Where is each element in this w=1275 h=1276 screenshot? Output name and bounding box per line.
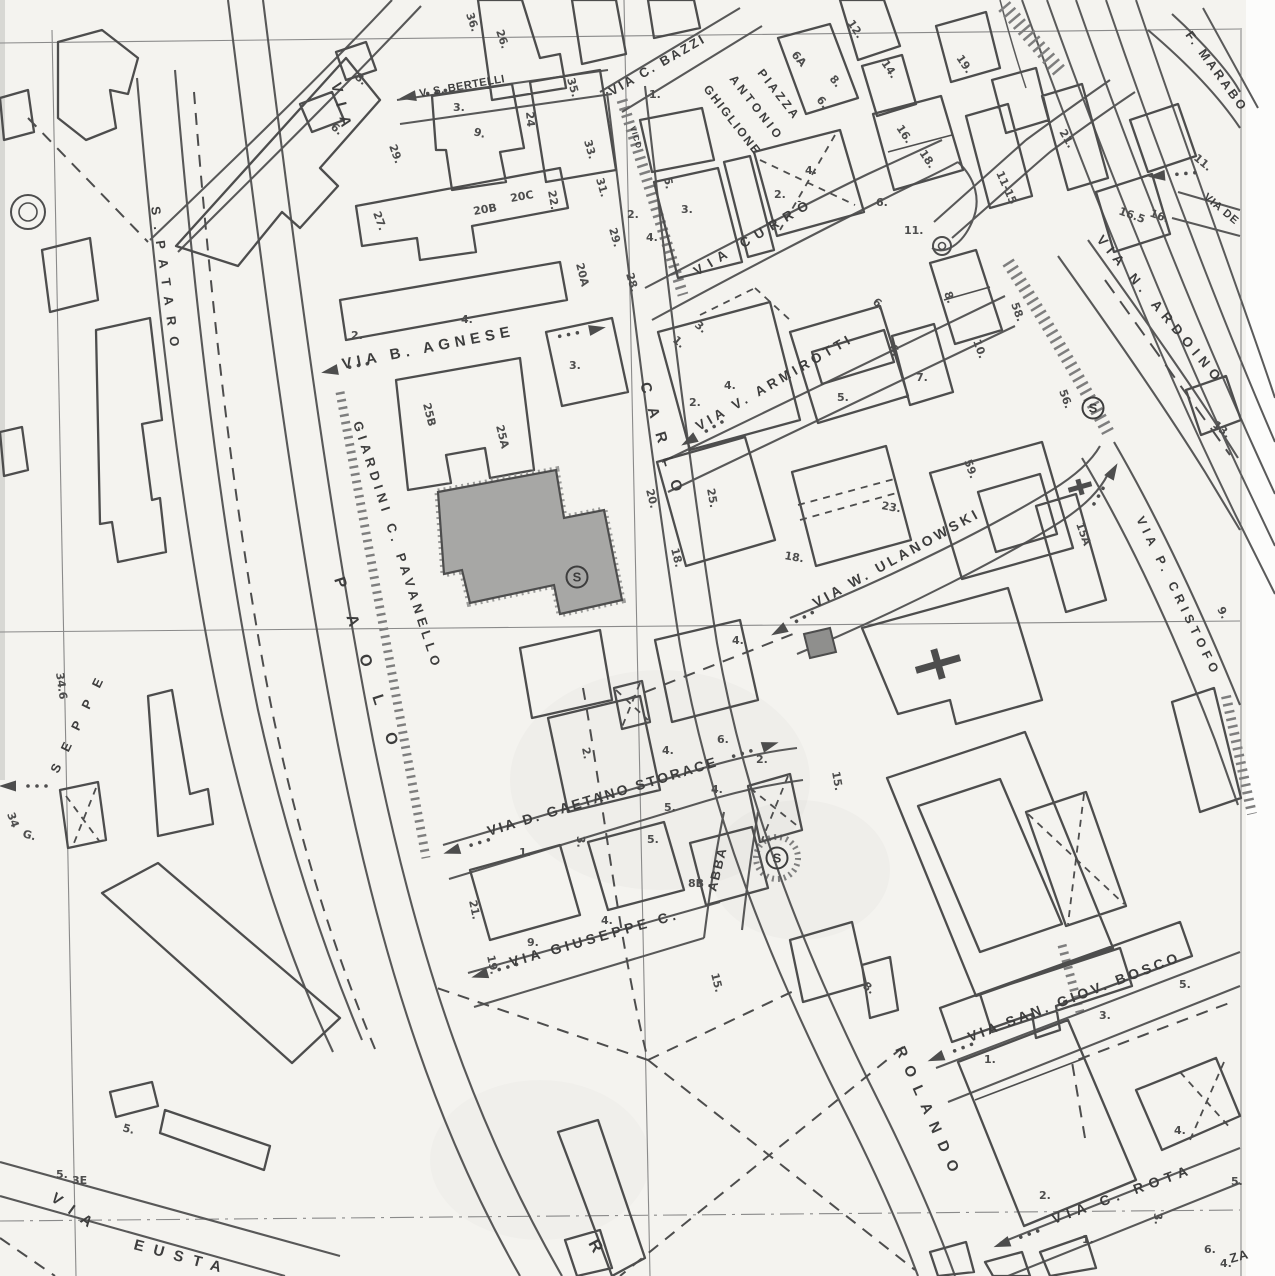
house-number: 4.: [461, 313, 473, 326]
map-page: SSS VIAV. S. BERTELLIVIA C. BAZZIPIAZZAA…: [0, 0, 1275, 1276]
map-canvas: SSS VIAV. S. BERTELLIVIA C. BAZZIPIAZZAA…: [0, 0, 1275, 1276]
house-number: 2.: [627, 208, 639, 221]
house-number: 4.: [1174, 1124, 1186, 1137]
small-public-building: [804, 628, 836, 658]
house-number: 5.: [1231, 1175, 1243, 1188]
house-number: 1.: [649, 88, 661, 101]
school-s-letter: S: [573, 570, 582, 585]
scan-margin-right: [1246, 0, 1275, 1276]
house-number: 3.: [1151, 1212, 1165, 1225]
house-number: 3E: [72, 1174, 87, 1187]
house-number: 4.: [724, 379, 736, 392]
house-number: 9.: [527, 936, 539, 949]
house-number: 1.: [1082, 1233, 1094, 1246]
house-number: 5.: [1179, 978, 1191, 991]
house-number: 1.: [519, 846, 531, 859]
house-number: 4.: [601, 914, 613, 927]
house-number: 2.: [756, 753, 768, 766]
house-number: 5.: [661, 176, 676, 190]
house-number: 3.: [569, 359, 581, 372]
house-number: 5.: [56, 1168, 68, 1181]
house-number: 2.: [689, 396, 701, 409]
house-number: 8B: [688, 877, 704, 890]
house-number: 11.: [904, 224, 924, 237]
school-s-letter: S: [1089, 401, 1098, 416]
house-number: 3.: [1099, 1009, 1111, 1022]
school-s-letter: S: [773, 851, 782, 866]
house-number: 6.: [1204, 1243, 1216, 1256]
house-number: 2.: [579, 746, 594, 760]
house-number: 3.: [681, 203, 693, 216]
house-number: 1.: [984, 1053, 996, 1066]
house-number: 24: [523, 111, 537, 128]
house-number: 6.: [717, 733, 729, 746]
house-number: 2.: [1039, 1189, 1051, 1202]
house-number: 4.: [711, 783, 723, 796]
house-number: 3.: [574, 836, 587, 848]
house-number: 4.: [732, 634, 744, 647]
house-number: 4.: [805, 164, 817, 177]
house-number: 5.: [647, 833, 659, 846]
house-number: 7.: [916, 371, 928, 384]
house-number: 5.: [664, 801, 676, 814]
house-number: 5.: [837, 391, 849, 404]
house-number: 4.: [662, 744, 674, 757]
house-number: 4.: [646, 231, 658, 244]
house-number: 3.: [453, 101, 465, 114]
house-number: 4.: [1220, 1257, 1232, 1270]
house-number: 2.: [351, 329, 363, 342]
house-number: 6.: [876, 196, 888, 209]
house-number: 2.: [774, 188, 786, 201]
